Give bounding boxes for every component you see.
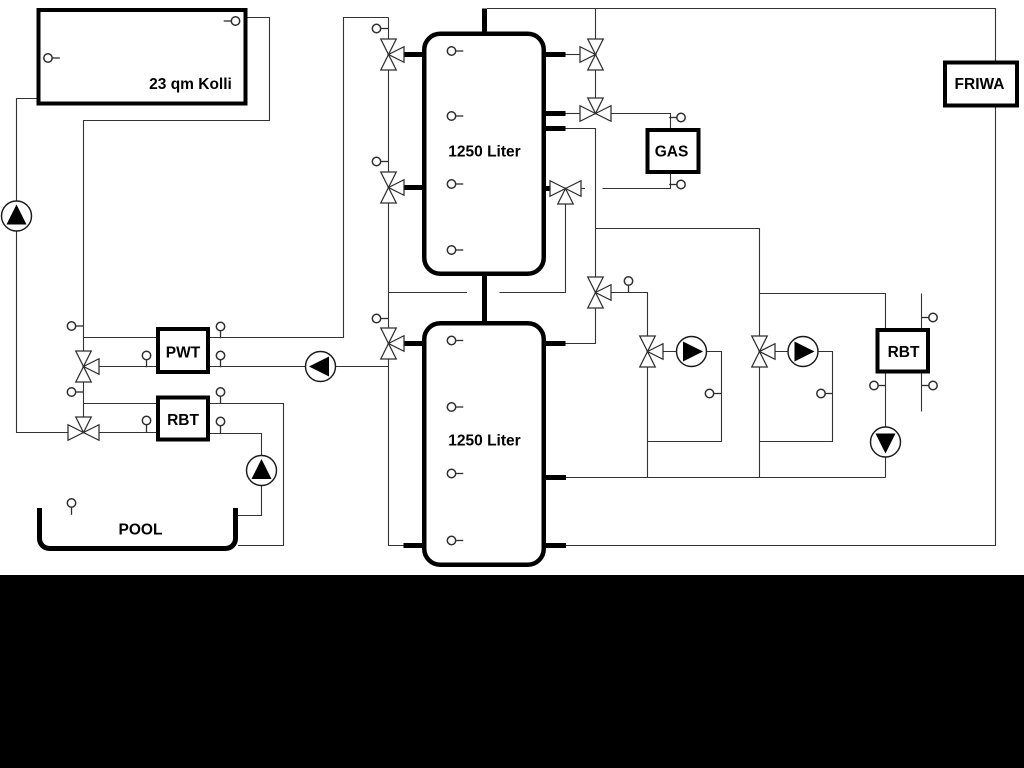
svg-text:1250 Liter: 1250 Liter xyxy=(448,144,520,161)
svg-text:POOL: POOL xyxy=(119,522,163,539)
svg-text:23 qm Kolli: 23 qm Kolli xyxy=(149,76,232,93)
svg-text:FRIWA: FRIWA xyxy=(955,76,1005,93)
svg-text:GAS: GAS xyxy=(655,144,689,161)
svg-text:RBT: RBT xyxy=(167,412,199,429)
svg-text:1250 Liter: 1250 Liter xyxy=(448,433,520,450)
svg-text:PWT: PWT xyxy=(166,345,201,362)
svg-text:RBT: RBT xyxy=(888,344,920,361)
